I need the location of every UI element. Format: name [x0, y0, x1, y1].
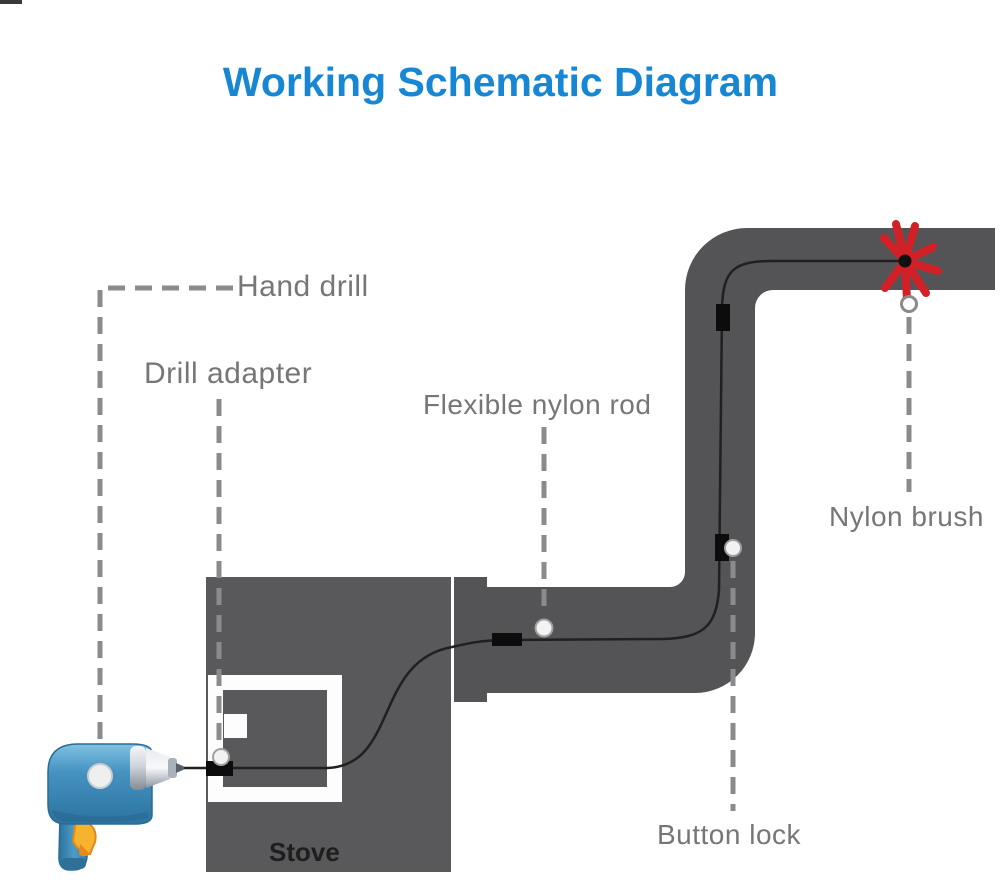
pipe-flange	[454, 577, 487, 702]
flexible-rod-marker-dot	[536, 620, 553, 637]
drill-chuck-cone	[146, 748, 170, 788]
hand-drill-icon	[48, 744, 184, 870]
flexible-nylon-rod-label: Flexible nylon rod	[423, 391, 651, 419]
drill-chuck-collar	[168, 758, 177, 778]
drill-adapter-label: Drill adapter	[144, 359, 312, 389]
hand-drill-marker-dot	[88, 764, 112, 788]
stove-door-opening	[223, 690, 327, 787]
schematic-canvas	[0, 0, 1001, 883]
button-lock-label: Button lock	[657, 821, 801, 849]
rod-connector	[492, 633, 522, 646]
drill-chuck-ring	[130, 746, 146, 790]
button-lock-marker-dot	[725, 540, 741, 556]
stove-door-handle	[224, 714, 247, 738]
nylon-brush-marker-dot	[902, 297, 917, 312]
hand-drill-label: Hand drill	[237, 272, 369, 302]
stove-label: Stove	[269, 839, 340, 865]
working-schematic-diagram: Working Schematic Diagram Hand drill Dri…	[0, 0, 1001, 883]
drill-handle-cap	[60, 858, 86, 869]
page-title: Working Schematic Diagram	[0, 62, 1001, 103]
drill-bit-tip	[176, 763, 184, 773]
nylon-brush-label: Nylon brush	[829, 503, 984, 531]
chimney-duct	[487, 228, 995, 693]
drill-adapter-marker-dot	[213, 749, 229, 765]
stove-door	[208, 675, 342, 802]
corner-artifact	[0, 0, 22, 4]
button-lock-upper	[716, 304, 730, 331]
nylon-brush-hub	[899, 255, 912, 268]
